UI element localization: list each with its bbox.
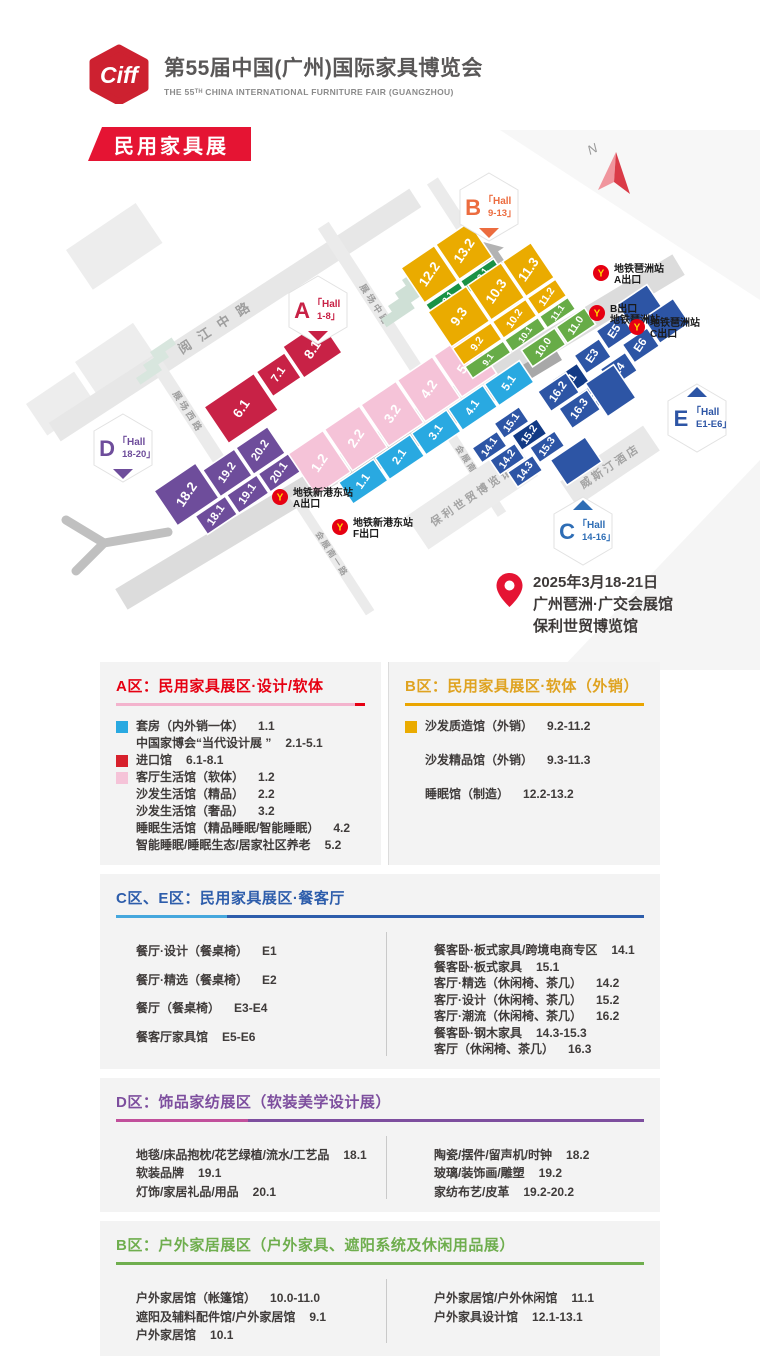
metro-station: Y地铁新港东站F出口 (332, 516, 413, 540)
metro-label: 地铁琶洲站 (614, 262, 664, 275)
item-hall-code: 19.2-20.2 (523, 1183, 574, 1202)
venue-hall-name-2: 保利世贸博览馆 (533, 616, 673, 638)
legend-item: 灯饰/家居礼品/用品20.1 (116, 1183, 376, 1202)
venue-info: 2025年3月18-21日 广州琶洲·广交会展馆 保利世贸博览馆 (496, 572, 673, 638)
legend-item: 客厅（休闲椅、茶几）16.3 (414, 1041, 644, 1058)
legend-panel-ce: C区、E区：民用家具展区·餐客厅餐厅·设计（餐桌椅）E1餐厅·精选（餐桌椅）E2… (100, 874, 660, 1069)
legend-panel-b-soft: B区：民用家具展区·软体（外销）沙发质造馆（外销）9.2-11.2沙发精品馆（外… (388, 662, 660, 865)
item-hall-code: 2.2 (258, 786, 275, 803)
fair-subtitle: THE 55ᵀᴴ CHINA INTERNATIONAL FURNITURE F… (164, 87, 483, 97)
ciff-logo: Ciff (88, 44, 150, 104)
metro-label: C出口 (650, 327, 677, 340)
legend-item: 沙发生活馆（奢品）3.2 (116, 803, 365, 820)
item-hall-code: 5.2 (325, 837, 342, 854)
item-label: 餐厅·精选（餐桌椅） (136, 971, 248, 990)
legend-item: 客厅·设计（休闲椅、茶几）15.2 (414, 992, 644, 1009)
item-label: 中国家博会“当代设计展 ” (136, 735, 271, 752)
section-underline (116, 1262, 644, 1265)
item-label: 睡眠生活馆（精品睡眠/智能睡眠） (136, 820, 319, 837)
road-fork (66, 520, 104, 543)
legend-item: 客厅·精选（休闲椅、茶几）14.2 (414, 975, 644, 992)
item-hall-code: 15.2 (596, 992, 619, 1009)
legend-item: 玻璃/装饰画/雕塑19.2 (414, 1164, 644, 1183)
legend-item: 沙发精品馆（外销）9.3-11.3 (405, 752, 644, 769)
column-divider (386, 1136, 387, 1200)
item-hall-code: 14.1 (611, 942, 634, 959)
badge-hall-range: 14-16」 (582, 532, 616, 543)
legend-item: 餐客卧·钢木家具14.3-15.3 (414, 1025, 644, 1042)
legend-item: 睡眠馆（制造）12.2-13.2 (405, 786, 644, 803)
svg-text:Y: Y (634, 322, 641, 333)
item-label: 玻璃/装饰画/雕塑 (434, 1164, 525, 1183)
item-hall-code: 16.3 (568, 1041, 591, 1058)
badge-hall-word: 「Hall (312, 297, 341, 310)
location-pin-icon (496, 572, 523, 608)
ciff-map-page: Ciff 第55届中国(广州)国际家具博览会 THE 55ᵀᴴ CHINA IN… (0, 0, 760, 1291)
item-label: 沙发生活馆（精品） (136, 786, 244, 803)
item-hall-code: 1.1 (258, 718, 275, 735)
legend-item: 陶瓷/摆件/留声机/时钟18.2 (414, 1146, 644, 1165)
section-title-b-soft: B区：民用家具展区·软体（外销） (405, 675, 644, 696)
svg-text:Y: Y (337, 522, 344, 533)
item-hall-code: 3.2 (258, 803, 275, 820)
legend-item: 户外家具设计馆12.1-13.1 (414, 1308, 644, 1327)
item-label: 软装品牌 (136, 1164, 184, 1183)
metro-label: A出口 (293, 497, 320, 510)
section-title-a: A区：民用家具展区·设计/软体 (116, 675, 365, 696)
item-hall-code: 20.1 (253, 1183, 276, 1202)
legend-item: 沙发生活馆（精品）2.2 (116, 786, 365, 803)
section-underline (116, 703, 365, 706)
legend-panel-d: D区：饰品家纺展区（软装美学设计展）地毯/床品抱枕/花艺绿植/流水/工艺品18.… (100, 1078, 660, 1213)
legend-item: 地毯/床品抱枕/花艺绿植/流水/工艺品18.1 (116, 1146, 376, 1165)
badge-hall-word: 「Hall (483, 194, 512, 207)
legend-item: 餐厅·设计（餐桌椅）E1 (116, 942, 376, 961)
legend-item: 遮阳及辅料配件馆/户外家居馆9.1 (116, 1308, 376, 1327)
item-label: 沙发质造馆（外销） (425, 718, 533, 735)
hall-badge-D: D「Hall18-20」 (94, 414, 156, 482)
badge-letter: C (559, 519, 575, 544)
item-label: 餐厅·设计（餐桌椅） (136, 942, 248, 961)
badge-hall-range: E1-E6」 (696, 419, 732, 430)
legend-item: 餐厅（餐桌椅）E3-E4 (116, 999, 376, 1018)
item-hall-code: E1 (262, 942, 277, 961)
item-label: 餐客卧·钢木家具 (434, 1025, 522, 1042)
column-divider (386, 1279, 387, 1343)
legend-item: 餐客厅家具馆E5-E6 (116, 1028, 376, 1047)
legend-item: 客厅·潮流（休闲椅、茶几）16.2 (414, 1008, 644, 1025)
item-hall-code: 12.1-13.1 (532, 1308, 583, 1327)
item-hall-code: E3-E4 (234, 999, 267, 1018)
item-hall-code: E2 (262, 971, 277, 990)
item-hall-code: 18.1 (343, 1146, 366, 1165)
item-hall-code: 19.1 (198, 1164, 221, 1183)
badge-hall-word: 「Hall (117, 435, 146, 448)
legend-item: 户外家居馆（帐篷馆）10.0-11.0 (116, 1289, 376, 1308)
item-label: 客厅（休闲椅、茶几） (434, 1041, 554, 1058)
section-title-d: D区：饰品家纺展区（软装美学设计展） (116, 1091, 644, 1112)
road-label: 会展南一路 (313, 528, 351, 578)
header: Ciff 第55届中国(广州)国际家具博览会 THE 55ᵀᴴ CHINA IN… (88, 44, 483, 104)
legend-item: 户外家居馆/户外休闲馆11.1 (414, 1289, 644, 1308)
metro-label: A出口 (614, 273, 641, 286)
metro-label: 地铁新港东站 (293, 486, 353, 499)
metro-label: B出口 (610, 302, 637, 315)
item-hall-code: 9.2-11.2 (547, 718, 590, 735)
item-label: 餐客卧·板式家具 (434, 959, 522, 976)
logo-text: Ciff (100, 62, 140, 88)
item-hall-code: 18.2 (566, 1146, 589, 1165)
metro-label: 地铁新港东站 (353, 516, 413, 529)
badge-letter: D (99, 436, 115, 461)
venue-hall-name: 广州琶洲·广交会展馆 (533, 594, 673, 616)
badge-hall-range: 9-13」 (488, 208, 517, 219)
header-text: 第55届中国(广州)国际家具博览会 THE 55ᵀᴴ CHINA INTERNA… (164, 44, 483, 97)
item-label: 客厅·潮流（休闲椅、茶几） (434, 1008, 582, 1025)
item-hall-code: 1.2 (258, 769, 275, 786)
badge-hall-range: 1-8」 (317, 311, 340, 322)
hall-badge-C: C「Hall14-16」 (554, 497, 616, 565)
section-underline (405, 703, 644, 706)
color-swatch (405, 721, 417, 733)
item-label: 智能睡眠/睡眠生态/居家社区养老 (136, 837, 311, 854)
svg-text:Y: Y (598, 268, 605, 279)
item-label: 户外家居馆（帐篷馆） (136, 1289, 256, 1308)
color-swatch (116, 721, 128, 733)
item-hall-code: 14.2 (596, 975, 619, 992)
section-underline (116, 1119, 644, 1122)
legend-item: 户外家居馆10.1 (116, 1326, 376, 1345)
legend-item: 睡眠生活馆（精品睡眠/智能睡眠）4.2 (116, 820, 365, 837)
legend-panel-a: A区：民用家具展区·设计/软体套房（内外销一体）1.1中国家博会“当代设计展 ”… (100, 662, 381, 865)
section-underline (116, 915, 644, 918)
legend-item: 中国家博会“当代设计展 ”2.1-5.1 (116, 735, 365, 752)
svg-text:Y: Y (277, 492, 284, 503)
badge-letter: E (674, 406, 689, 431)
item-label: 套房（内外销一体） (136, 718, 244, 735)
fair-title: 第55届中国(广州)国际家具博览会 (164, 52, 483, 82)
item-label: 户外家具设计馆 (434, 1308, 518, 1327)
svg-text:Y: Y (594, 308, 601, 319)
section-title-ce: C区、E区：民用家具展区·餐客厅 (116, 887, 644, 908)
item-label: 餐客厅家具馆 (136, 1028, 208, 1047)
column-divider (386, 932, 387, 1056)
item-hall-code: 15.1 (536, 959, 559, 976)
item-label: 户外家居馆 (136, 1326, 196, 1345)
item-hall-code: 9.1 (309, 1308, 326, 1327)
legend-item: 餐客卧·板式家具/跨境电商专区14.1 (414, 942, 644, 959)
legend-item: 客厅生活馆（软体）1.2 (116, 769, 365, 786)
venue-date: 2025年3月18-21日 (533, 572, 673, 594)
item-hall-code: 9.3-11.3 (547, 752, 590, 769)
badge-hall-word: 「Hall (691, 405, 720, 418)
legend-item: 沙发质造馆（外销）9.2-11.2 (405, 718, 644, 735)
legend-item: 家纺布艺/皮革19.2-20.2 (414, 1183, 644, 1202)
item-label: 陶瓷/摆件/留声机/时钟 (434, 1146, 552, 1165)
item-hall-code: 11.1 (571, 1289, 594, 1308)
item-hall-code: 16.2 (596, 1008, 619, 1025)
legend-sections: A区：民用家具展区·设计/软体套房（内外销一体）1.1中国家博会“当代设计展 ”… (100, 662, 660, 1365)
metro-label: 地铁琶洲站 (650, 316, 700, 329)
item-hall-code: 14.3-15.3 (536, 1025, 587, 1042)
item-hall-code: 2.1-5.1 (285, 735, 322, 752)
road-fork (76, 543, 104, 571)
color-swatch (116, 755, 128, 767)
legend-item: 餐厅·精选（餐桌椅）E2 (116, 971, 376, 990)
section-title-b-outdoor: B区：户外家居展区（户外家具、遮阳系统及休闲用品展） (116, 1234, 644, 1255)
item-label: 沙发精品馆（外销） (425, 752, 533, 769)
item-label: 睡眠馆（制造） (425, 786, 509, 803)
legend-item: 套房（内外销一体）1.1 (116, 718, 365, 735)
badge-hall-range: 18-20」 (122, 449, 156, 460)
item-hall-code: E5-E6 (222, 1028, 255, 1047)
item-label: 餐厅（餐桌椅） (136, 999, 220, 1018)
item-label: 餐客卧·板式家具/跨境电商专区 (434, 942, 597, 959)
item-label: 地毯/床品抱枕/花艺绿植/流水/工艺品 (136, 1146, 329, 1165)
legend-item: 软装品牌19.1 (116, 1164, 376, 1183)
item-hall-code: 12.2-13.2 (523, 786, 574, 803)
item-label: 户外家居馆/户外休闲馆 (434, 1289, 557, 1308)
item-hall-code: 4.2 (333, 820, 350, 837)
venue-details: 2025年3月18-21日 广州琶洲·广交会展馆 保利世贸博览馆 (533, 572, 673, 638)
item-label: 家纺布艺/皮革 (434, 1183, 509, 1202)
item-hall-code: 6.1-8.1 (186, 752, 223, 769)
item-label: 客厅·精选（休闲椅、茶几） (434, 975, 582, 992)
legend-item: 进口馆6.1-8.1 (116, 752, 365, 769)
badge-letter: B (465, 195, 481, 220)
legend-item: 餐客卧·板式家具15.1 (414, 959, 644, 976)
city-block (66, 203, 162, 290)
badge-hall-word: 「Hall (577, 518, 606, 531)
road-label: 阅江中路 (175, 294, 260, 357)
item-hall-code: 19.2 (539, 1164, 562, 1183)
legend-panel-b-outdoor: B区：户外家居展区（户外家具、遮阳系统及休闲用品展）户外家居馆（帐篷馆）10.0… (100, 1221, 660, 1356)
road-label: 展场西路 (171, 389, 206, 435)
item-hall-code: 10.1 (210, 1326, 233, 1345)
metro-label: F出口 (353, 527, 379, 540)
hall-badge-E: E「HallE1-E6」 (668, 384, 732, 452)
color-swatch (116, 772, 128, 784)
road-fork (104, 532, 168, 543)
item-label: 客厅·设计（休闲椅、茶几） (434, 992, 582, 1009)
badge-letter: A (294, 298, 310, 323)
item-label: 客厅生活馆（软体） (136, 769, 244, 786)
item-label: 遮阳及辅料配件馆/户外家居馆 (136, 1308, 295, 1327)
legend-item: 智能睡眠/睡眠生态/居家社区养老5.2 (116, 837, 365, 854)
item-label: 灯饰/家居礼品/用品 (136, 1183, 239, 1202)
item-hall-code: 10.0-11.0 (270, 1289, 320, 1308)
item-label: 进口馆 (136, 752, 172, 769)
road: 会展南一路 (290, 493, 375, 616)
item-label: 沙发生活馆（奢品） (136, 803, 244, 820)
